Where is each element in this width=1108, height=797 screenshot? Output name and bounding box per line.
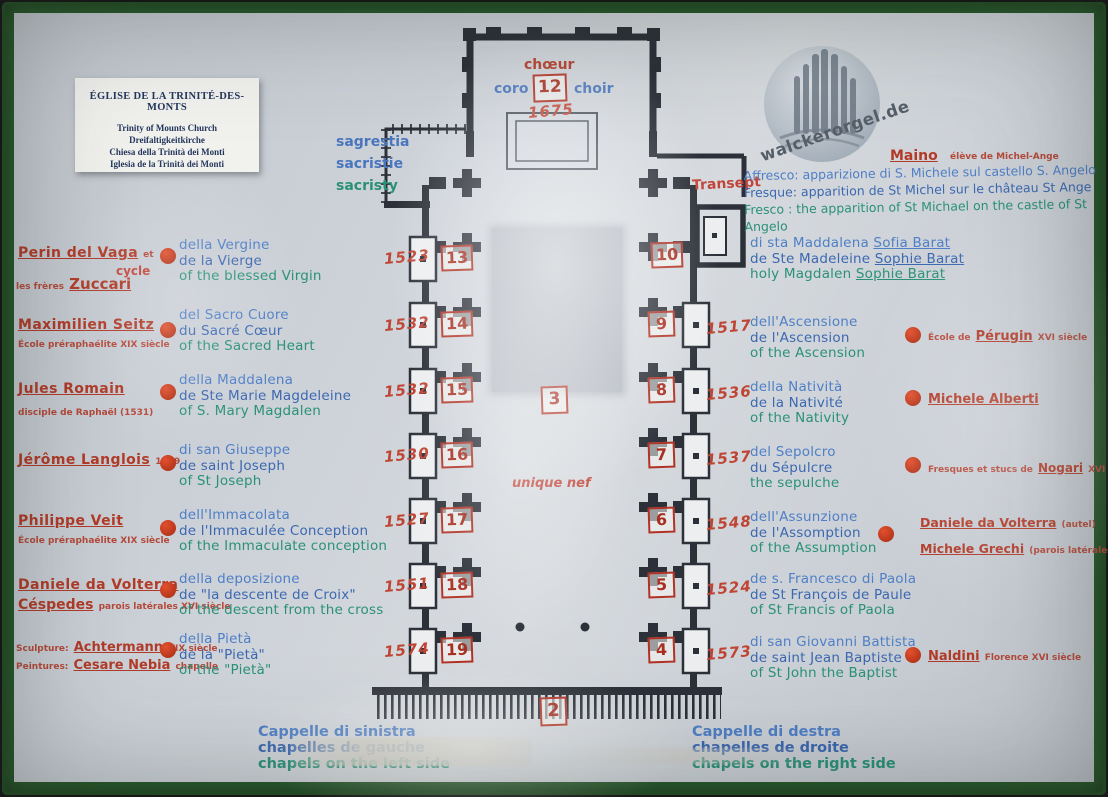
artist-name: Jules Romain: [18, 381, 125, 397]
red-dot: [160, 248, 176, 264]
dedication-it: della Maddalena: [179, 373, 351, 389]
dedication-fr: de la Vierge: [179, 254, 322, 270]
artist-name-2: Zuccari: [69, 275, 131, 293]
dedication: della Pietà de la "Pietà" of the "Pietà": [179, 632, 271, 679]
dedication-en: of S. Mary Magdalen: [179, 404, 351, 420]
artist-note: XVI siècle: [1088, 465, 1108, 475]
dedication-fr: de la Nativité: [750, 396, 849, 412]
dedication: dell'Assunzione de l'Assomption of the A…: [750, 510, 877, 557]
fresco-artist: Maino: [890, 148, 938, 164]
role-label: Sculpture:: [16, 644, 69, 654]
sacristy-it: sagrestia: [336, 131, 409, 153]
dedication-fr: de St François de Paule: [750, 588, 916, 604]
artist-prefix: Fresques et stucs de: [928, 465, 1033, 475]
choir-label-it: coro: [494, 81, 528, 97]
dedication-en: of St Joseph: [179, 474, 290, 490]
dedication-it: della Vergine: [179, 238, 322, 254]
chapel-6-number: 6: [648, 507, 676, 534]
dedication: della deposizione de "la descente de Cro…: [179, 572, 383, 619]
dedication-en: of St John the Baptist: [750, 666, 916, 682]
red-dot: [160, 520, 176, 536]
entry-chapel-8: della Natività de la Nativité of the Nat…: [750, 380, 1106, 452]
chapel-16-number: 16: [441, 441, 474, 469]
dedication-en: of the Ascension: [750, 346, 865, 362]
artist-name: Jérôme Langlois: [18, 452, 150, 468]
artist-name: Daniele da Volterra: [18, 577, 178, 593]
dedication-fr: du Sépulcre: [750, 461, 839, 477]
chapel-5-number: 5: [648, 572, 676, 599]
chapel-18-number: 18: [441, 571, 474, 599]
dedication: di san Giuseppe de saint Joseph of St Jo…: [179, 443, 290, 490]
dedication-en: of the "Pietà": [179, 663, 271, 679]
artist-name: Perin del Vaga: [18, 245, 138, 261]
red-dot: [905, 647, 921, 663]
church-title: ÉGLISE DE LA TRINITÉ-DES-MONTS: [75, 91, 259, 113]
artist-note: École préraphaélite XIX siècle: [18, 340, 170, 350]
entry-chapel-9: dell'Ascensione de l'Ascension of the As…: [750, 315, 1106, 387]
choir-number: 12: [533, 73, 568, 102]
dedication-fr: de saint Jean Baptiste: [750, 651, 916, 667]
sacristy-labels: sagrestia sacristie sacristy: [336, 131, 409, 197]
dedication: de s. Francesco di Paola de St François …: [750, 572, 916, 619]
entry-chapel-13: Perin del Vaga et cycle les frères Zucca…: [16, 238, 376, 310]
role-label-2: Peintures:: [16, 662, 68, 672]
dedication-en: of the Immaculate conception: [179, 539, 387, 555]
dedication: del Sepolcro du Sépulcre the sepulche: [750, 445, 839, 492]
dedication: della Vergine de la Vierge of the blesse…: [179, 238, 322, 285]
red-dot: [160, 384, 176, 400]
dedication-it: del Sacro Cuore: [179, 308, 315, 324]
artist-prefix: École de: [928, 333, 971, 343]
red-dot: [905, 327, 921, 343]
dedication-fr: de l'Immaculée Conception: [179, 524, 387, 540]
fresco-en: Fresco : the apparition of St Michael on…: [744, 195, 1108, 235]
dedication-en: of the blessed Virgin: [179, 269, 322, 285]
red-dot: [160, 455, 176, 471]
dedication-it-name: Sofia Barat: [873, 235, 950, 251]
dedication-it: di san Giuseppe: [179, 443, 290, 459]
chapel-8-number: 8: [648, 377, 676, 404]
dedication-it: dell'Ascensione: [750, 315, 865, 331]
artist-prefix: les frères: [16, 282, 64, 292]
title-card: ÉGLISE DE LA TRINITÉ-DES-MONTS Trinity o…: [75, 78, 259, 172]
fresco-description: Affresco: apparizione di S. Michele sul …: [743, 161, 1108, 235]
artist-name: Maximilien Seitz: [18, 317, 154, 333]
glare-smudge: [292, 738, 532, 766]
dedication-it: della deposizione: [179, 572, 383, 588]
dedication-it: di sta Maddalena: [750, 235, 869, 251]
dedication-en: of the descent from the cross: [179, 603, 383, 619]
red-dot: [905, 457, 921, 473]
artist-name: Philippe Veit: [18, 513, 123, 529]
entry-chapel-15: Jules Romain disciple de Raphaël (1531) …: [16, 372, 376, 444]
dedication-en: the sepulche: [750, 476, 839, 492]
walckerorgel-logo: walckerorgel.de: [755, 40, 891, 176]
chapel-4-number: 4: [648, 637, 676, 664]
dedication-en: of the Sacred Heart: [179, 339, 315, 355]
dedication-fr: de "la descente de Croix": [179, 588, 383, 604]
sacristy-fr: sacristie: [336, 153, 409, 175]
dedication-fr: de Ste Madeleine: [750, 251, 870, 267]
red-dot: [878, 526, 894, 542]
entry-chapel-14: Maximilien Seitz École préraphaélite XIX…: [16, 308, 376, 380]
artist-name-2: Céspedes: [18, 597, 93, 613]
dedication-en-name: Sophie Barat: [856, 266, 945, 282]
red-dot: [905, 390, 921, 406]
dedication: di san Giovanni Battista de saint Jean B…: [750, 635, 916, 682]
dedication-it: della Pietà: [179, 632, 271, 648]
red-dot: [160, 582, 176, 598]
chapel-13-number: 13: [441, 244, 474, 272]
nave-label: unique nef: [512, 476, 591, 491]
dedication-fr: de Ste Marie Magdeleine: [179, 389, 351, 405]
dedication-en: of the Assumption: [750, 541, 877, 557]
dedication: della Natività de la Nativité of the Nat…: [750, 380, 849, 427]
artist-suffix: et: [143, 250, 153, 260]
choir-label-fr: chœur: [524, 57, 574, 73]
dedication: della Maddalena de Ste Marie Magdeleine …: [179, 373, 351, 420]
chapel-14-number: 14: [441, 310, 474, 338]
dedication-en: of the Nativity: [750, 411, 849, 427]
glare-smudge-2: [560, 748, 810, 764]
artist-note: disciple de Raphaël (1531): [18, 408, 153, 418]
nave-number: 3: [541, 386, 569, 414]
sacristy-en: sacristy: [336, 175, 409, 197]
artist-name-2: Michele Grechi: [920, 541, 1024, 556]
photo-of-church-plan-board: walckerorgel.de ÉGLISE DE LA TRINITÉ-DES…: [0, 0, 1108, 797]
artist-name: Daniele da Volterra: [920, 515, 1056, 530]
artist-note-2: (parois latérales): [1029, 546, 1108, 556]
chapel-19-number: 19: [441, 636, 474, 664]
entrance-wall: [372, 687, 722, 695]
dedication-fr-name: Sophie Barat: [875, 251, 964, 267]
artist-name: Achtermann: [74, 640, 163, 655]
artist-name: Nogari: [1038, 461, 1083, 475]
faded-patch: [492, 228, 622, 392]
church-name-en: Trinity of Mounts Church: [75, 122, 259, 134]
dedication-fr: du Sacré Cœur: [179, 324, 315, 340]
dedication-it: de s. Francesco di Paola: [750, 572, 916, 588]
dedication-it: dell'Assunzione: [750, 510, 877, 526]
artist-note: École préraphaélite XIX siècle: [18, 536, 170, 546]
chapel-9-number: 9: [648, 311, 676, 338]
dedication-fr: de la "Pietà": [179, 648, 271, 664]
dedication-en: holy Magdalen: [750, 266, 851, 282]
chapel-15-number: 15: [441, 376, 474, 404]
church-name-it: Chiesa della Trinità dei Monti: [75, 146, 259, 158]
dedication-it: dell'Immacolata: [179, 508, 387, 524]
entrance-number: 2: [540, 697, 568, 727]
entry-chapel-17: Philippe Veit École préraphaélite XIX si…: [16, 506, 376, 578]
artist-name: Michele Alberti: [928, 392, 1039, 407]
chapel-10-number: 10: [651, 241, 684, 269]
dedication-it: del Sepolcro: [750, 445, 839, 461]
dedication-it: di san Giovanni Battista: [750, 635, 916, 651]
chapel-17-number: 17: [441, 506, 474, 534]
dedication: dell'Ascensione de l'Ascension of the As…: [750, 315, 865, 362]
dedication: dell'Immacolata de l'Immaculée Conceptio…: [179, 508, 387, 555]
dedication-fr: de l'Assomption: [750, 526, 877, 542]
church-name-es: Iglesia de la Trinità dei Monti: [75, 158, 259, 170]
dedication-fr: de saint Joseph: [179, 459, 290, 475]
dedication-en: of St Francis of Paola: [750, 603, 916, 619]
entry-chapel-4: di san Giovanni Battista de saint Jean B…: [750, 635, 1106, 707]
chapel-7-number: 7: [648, 442, 676, 469]
red-dot: [160, 642, 176, 658]
red-dot: [160, 322, 176, 338]
church-name-de: Dreifaltigkeitkirche: [75, 134, 259, 146]
artist-name: Pérugin: [976, 329, 1033, 344]
dedication: del Sacro Cuore du Sacré Cœur of the Sac…: [179, 308, 315, 355]
entry-chapel-19: Sculpture: Achtermann XIX siècle Peintur…: [16, 630, 376, 702]
artist-note: Florence XVI siècle: [985, 653, 1081, 663]
dedication: di sta Maddalena Sofia Barat de Ste Made…: [750, 236, 964, 283]
artist-note: (autel): [1062, 520, 1096, 530]
entry-chapel-10: di sta Maddalena Sofia Barat de Ste Made…: [750, 236, 1106, 308]
artist-name: Naldini: [928, 649, 980, 664]
choir-label-en: choir: [574, 81, 614, 97]
dedication-it: della Natività: [750, 380, 849, 396]
caption-it: Cappelle di destra: [692, 724, 896, 740]
fresco-artist-note: élève de Michel-Ange: [950, 152, 1059, 162]
dedication-fr: de l'Ascension: [750, 331, 865, 347]
entry-chapel-7: del Sepolcro du Sépulcre the sepulche Fr…: [750, 445, 1106, 517]
entry-chapel-16: Jérôme Langlois 1809 di san Giuseppe de …: [16, 441, 376, 513]
artist-name-2: Cesare Nebia: [74, 658, 171, 673]
artist-note: XVI siècle: [1038, 333, 1087, 343]
